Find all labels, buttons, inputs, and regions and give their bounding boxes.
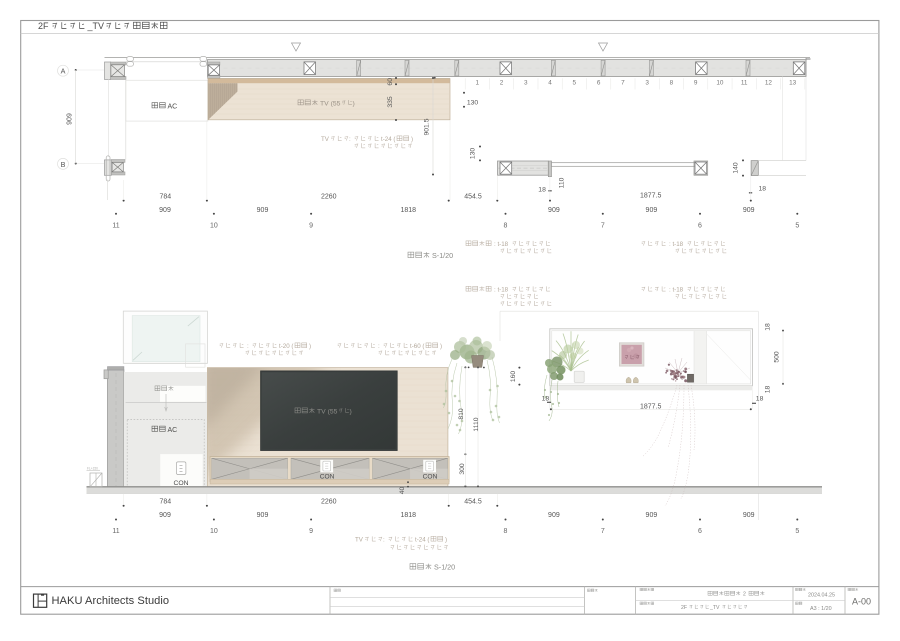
svg-text:_TV: _TV bbox=[87, 21, 105, 31]
svg-text:: t-18: : t-18 bbox=[669, 287, 684, 294]
svg-text:FL+150: FL+150 bbox=[87, 466, 98, 470]
svg-text:6: 6 bbox=[698, 223, 702, 230]
svg-text:TV: TV bbox=[321, 136, 330, 143]
svg-text:10: 10 bbox=[716, 80, 724, 87]
svg-text:S-1/20: S-1/20 bbox=[432, 251, 453, 260]
svg-text:909: 909 bbox=[646, 512, 658, 519]
svg-text:110: 110 bbox=[558, 177, 565, 188]
svg-text:810: 810 bbox=[458, 408, 465, 420]
svg-text:454.5: 454.5 bbox=[464, 193, 482, 200]
svg-text:t-20 (: t-20 ( bbox=[279, 343, 294, 350]
svg-text:): ) bbox=[309, 343, 311, 350]
svg-text:500: 500 bbox=[774, 351, 781, 363]
svg-text:8: 8 bbox=[504, 223, 508, 230]
svg-text:9: 9 bbox=[309, 528, 313, 535]
svg-text:CON: CON bbox=[173, 480, 188, 487]
svg-text:909: 909 bbox=[743, 512, 755, 519]
svg-text:40: 40 bbox=[399, 487, 406, 495]
svg-text:A: A bbox=[61, 67, 66, 76]
svg-text:60: 60 bbox=[387, 78, 394, 86]
svg-text:): ) bbox=[445, 537, 447, 544]
svg-text:784: 784 bbox=[159, 193, 171, 200]
svg-text:2260: 2260 bbox=[321, 498, 337, 505]
svg-text:300: 300 bbox=[459, 463, 466, 475]
svg-text:18: 18 bbox=[759, 186, 767, 193]
svg-text:909: 909 bbox=[159, 512, 171, 519]
svg-text:3: 3 bbox=[645, 80, 649, 87]
svg-text:909: 909 bbox=[257, 512, 269, 519]
svg-text:1877.5: 1877.5 bbox=[640, 403, 662, 410]
svg-text:909: 909 bbox=[743, 207, 755, 214]
svg-text:): ) bbox=[440, 343, 442, 350]
svg-text::: : bbox=[378, 343, 380, 350]
svg-text:2260: 2260 bbox=[321, 193, 337, 200]
svg-text:10: 10 bbox=[210, 528, 218, 535]
svg-text:13: 13 bbox=[789, 80, 797, 87]
svg-text:335: 335 bbox=[387, 96, 394, 108]
svg-text:A3 : 1/20: A3 : 1/20 bbox=[810, 606, 832, 612]
svg-text:1818: 1818 bbox=[401, 207, 417, 214]
svg-text:11: 11 bbox=[112, 528, 119, 535]
svg-text:2F: 2F bbox=[681, 605, 687, 611]
svg-text:909: 909 bbox=[159, 207, 171, 214]
svg-text:t-60 (: t-60 ( bbox=[410, 343, 425, 350]
svg-text:1: 1 bbox=[476, 80, 480, 87]
svg-text:8: 8 bbox=[670, 80, 674, 87]
svg-text:5: 5 bbox=[795, 528, 799, 535]
svg-text:454.5: 454.5 bbox=[464, 498, 482, 505]
svg-text:909: 909 bbox=[646, 207, 658, 214]
svg-text::: : bbox=[349, 136, 351, 143]
svg-text:: t-18: : t-18 bbox=[494, 241, 509, 248]
svg-text:TV (55: TV (55 bbox=[317, 409, 338, 416]
svg-text:7: 7 bbox=[621, 80, 625, 87]
svg-text:3: 3 bbox=[524, 80, 528, 87]
svg-text:18: 18 bbox=[765, 386, 772, 394]
svg-text:1818: 1818 bbox=[401, 512, 417, 519]
svg-text:): ) bbox=[411, 136, 413, 143]
svg-text:11: 11 bbox=[741, 80, 748, 87]
svg-text:A-00: A-00 bbox=[852, 597, 871, 607]
svg-text:4: 4 bbox=[548, 80, 552, 87]
svg-text:): ) bbox=[353, 101, 355, 108]
svg-text:9: 9 bbox=[694, 80, 698, 87]
svg-text:: t-18: : t-18 bbox=[669, 241, 684, 248]
svg-text:2024.04.25: 2024.04.25 bbox=[808, 593, 835, 599]
svg-text:5: 5 bbox=[573, 80, 577, 87]
svg-text:11: 11 bbox=[112, 223, 119, 230]
svg-text:9: 9 bbox=[309, 223, 313, 230]
svg-text:909: 909 bbox=[548, 512, 560, 519]
svg-text:TV (55: TV (55 bbox=[320, 101, 341, 108]
svg-text:: t-18: : t-18 bbox=[494, 287, 509, 294]
svg-text:AC: AC bbox=[168, 104, 178, 111]
svg-text:2: 2 bbox=[500, 80, 504, 87]
svg-text::: : bbox=[383, 537, 385, 544]
svg-text:6: 6 bbox=[698, 528, 702, 535]
svg-text:909: 909 bbox=[67, 113, 74, 125]
svg-text:18: 18 bbox=[542, 396, 550, 403]
svg-text:784: 784 bbox=[159, 498, 171, 505]
svg-text:6: 6 bbox=[597, 80, 601, 87]
svg-text:1110: 1110 bbox=[473, 417, 480, 431]
svg-text::: : bbox=[247, 343, 249, 350]
svg-text:B: B bbox=[61, 160, 66, 169]
svg-text:1877.5: 1877.5 bbox=[640, 193, 662, 200]
svg-text:909: 909 bbox=[257, 207, 269, 214]
svg-text:909: 909 bbox=[548, 207, 560, 214]
svg-text:t-24 (: t-24 ( bbox=[415, 537, 430, 544]
svg-text:140: 140 bbox=[733, 162, 740, 174]
svg-text:18: 18 bbox=[538, 187, 546, 194]
svg-text:901.5: 901.5 bbox=[424, 118, 431, 135]
svg-text:18: 18 bbox=[765, 323, 772, 331]
svg-text:): ) bbox=[350, 409, 352, 416]
svg-text:12: 12 bbox=[765, 80, 773, 87]
svg-text:2: 2 bbox=[743, 592, 746, 598]
svg-text:TV: TV bbox=[355, 537, 364, 544]
svg-text:CON: CON bbox=[320, 474, 335, 481]
svg-text:7: 7 bbox=[601, 528, 605, 535]
svg-text:t-24 (: t-24 ( bbox=[381, 136, 396, 143]
svg-text:2F: 2F bbox=[38, 21, 49, 31]
svg-text:8: 8 bbox=[504, 528, 508, 535]
svg-text:CON: CON bbox=[423, 474, 438, 481]
svg-text:AC: AC bbox=[168, 427, 178, 434]
svg-text:5: 5 bbox=[795, 223, 799, 230]
svg-text:HAKU Architects Studio: HAKU Architects Studio bbox=[52, 595, 170, 607]
svg-text:18: 18 bbox=[756, 396, 764, 403]
svg-text:10: 10 bbox=[210, 223, 218, 230]
svg-text:S-1/20: S-1/20 bbox=[434, 563, 455, 572]
svg-text:160: 160 bbox=[510, 371, 517, 383]
svg-text:130: 130 bbox=[470, 148, 477, 160]
svg-text:130: 130 bbox=[467, 100, 479, 107]
svg-text:_TV: _TV bbox=[709, 605, 720, 611]
svg-text:7: 7 bbox=[601, 223, 605, 230]
